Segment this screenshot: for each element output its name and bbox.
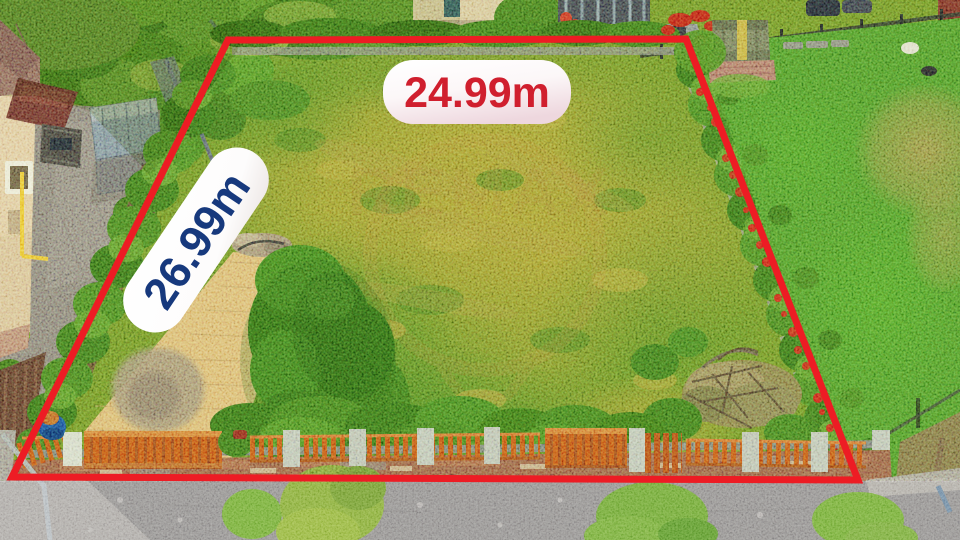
svg-text:24.99m: 24.99m xyxy=(404,69,550,117)
